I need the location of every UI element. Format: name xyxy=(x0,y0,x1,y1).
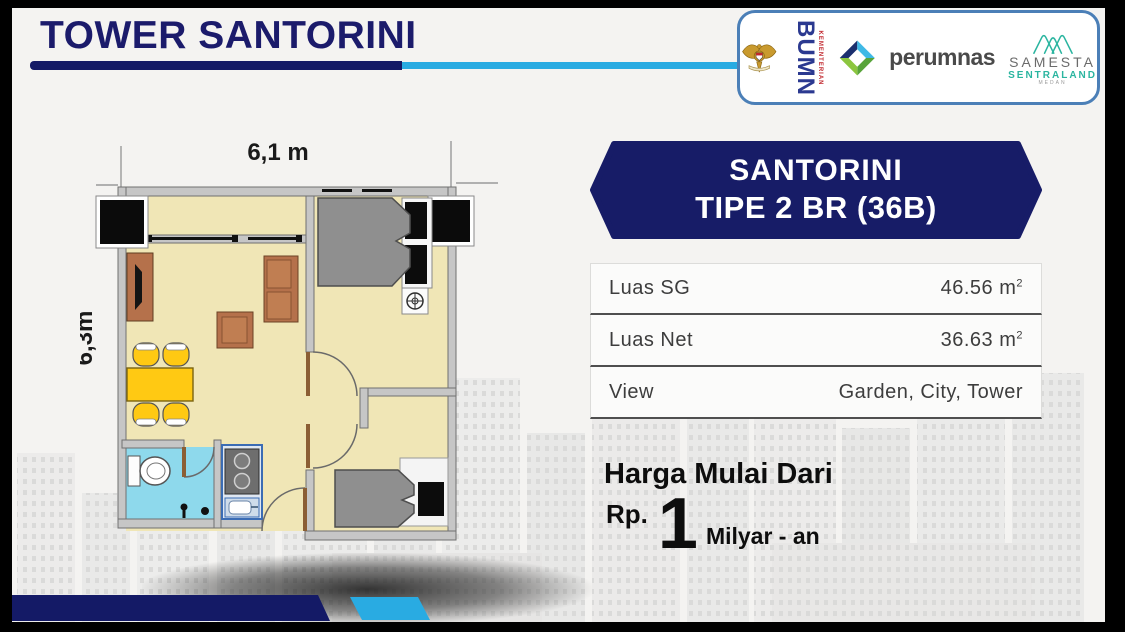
spec-value: Garden, City, Tower xyxy=(839,381,1023,403)
spec-label: View xyxy=(609,381,654,404)
dining-table xyxy=(127,368,193,401)
samesta-label: SAMESTA xyxy=(1009,54,1096,70)
height-dimension-label: 6,3m xyxy=(80,311,98,366)
perumnas-diamond-icon xyxy=(838,37,877,79)
unit-type-banner-text: SANTORINI TIPE 2 BR (36B) xyxy=(590,140,1042,240)
medan-label: MEDAN xyxy=(1039,81,1067,87)
kementerian-bumn-logo: KEMENTERIAN BUMN xyxy=(792,23,825,93)
screenshot-root: { "slide_title": "TOWER SANTORINI", "flo… xyxy=(0,0,1125,632)
toilet xyxy=(128,456,170,486)
spec-value: 36.63 m xyxy=(941,329,1017,351)
bed-second xyxy=(335,470,414,527)
table-row: Luas Net 36.63 m2 xyxy=(590,315,1042,367)
bumn-label: BUMN xyxy=(793,20,817,96)
sofa xyxy=(264,256,298,322)
page-title: TOWER SANTORINI xyxy=(40,14,417,58)
brand-logo-box: KEMENTERIAN BUMN perumnas SAMESTA SENTRA… xyxy=(737,10,1100,105)
ac-unit-left xyxy=(96,196,148,248)
ac-unit-right xyxy=(428,196,474,246)
spec-value-sup: 2 xyxy=(1016,329,1023,341)
samesta-crown-icon xyxy=(1030,28,1076,54)
price-heading: Harga Mulai Dari xyxy=(604,458,833,491)
width-dimension-label: 6,1 m xyxy=(247,139,308,166)
kitchen-counter xyxy=(222,445,262,519)
spec-value-sup: 2 xyxy=(1016,277,1023,289)
spec-label: Luas SG xyxy=(609,277,690,300)
perumnas-label: perumnas xyxy=(889,44,995,71)
floor-drain xyxy=(201,507,209,515)
samesta-sentraland-logo: SAMESTA SENTRALAND MEDAN xyxy=(1008,28,1097,87)
spec-table: Luas SG 46.56 m2 Luas Net 36.63 m2 View … xyxy=(590,263,1042,419)
garuda-pancasila-logo xyxy=(740,34,779,82)
tv-console xyxy=(127,253,153,321)
accent-bar-navy-bottom xyxy=(12,595,334,621)
spec-label: Luas Net xyxy=(609,329,693,352)
price-block: Harga Mulai Dari Rp. 1 Milyar - an xyxy=(604,458,833,554)
price-amount: 1 xyxy=(658,495,698,554)
accent-bar-navy-top xyxy=(30,61,402,70)
table-row: Luas SG 46.56 m2 xyxy=(590,263,1042,315)
floorplan: 6,1 m 6,3m xyxy=(80,130,500,575)
armchair xyxy=(217,312,253,348)
price-currency: Rp. xyxy=(606,499,648,530)
price-unit: Milyar - an xyxy=(706,523,820,550)
accent-bar-cyan-top xyxy=(402,62,742,69)
spec-value: 46.56 m xyxy=(941,277,1017,299)
banner-line2: TIPE 2 BR (36B) xyxy=(695,189,937,226)
slide: TOWER SANTORINI KEMENTERIAN BUMN perumn xyxy=(12,8,1105,622)
bed-master xyxy=(318,198,410,286)
table-row: View Garden, City, Tower xyxy=(590,367,1042,419)
banner-line1: SANTORINI xyxy=(729,153,902,189)
exhaust-fan-icon xyxy=(402,288,428,314)
